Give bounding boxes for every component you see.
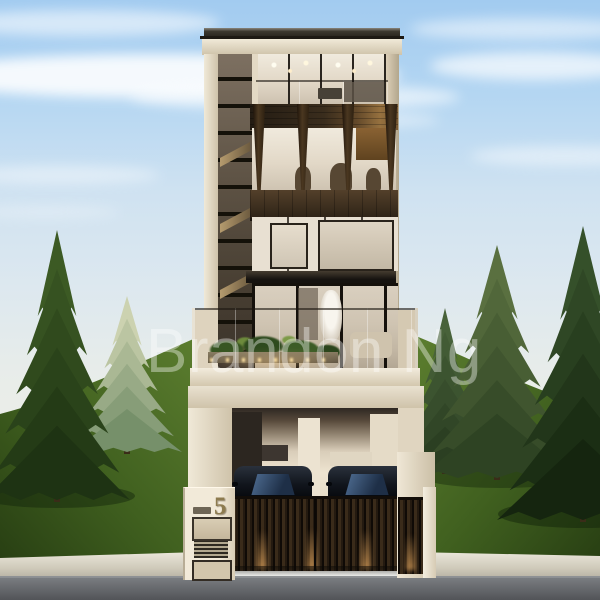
- parapet: [202, 39, 402, 55]
- fence-post-right: [423, 487, 436, 578]
- canopy-beam: [246, 271, 396, 283]
- garage-wall-unit: [262, 445, 288, 461]
- gate-uplight: [361, 519, 371, 569]
- car: [328, 466, 406, 500]
- car-mirror: [308, 482, 314, 486]
- architectural-render: 5 Brandon Ng: [0, 0, 600, 600]
- gate-ground-shadow: [231, 566, 399, 576]
- gate-center-seam: [314, 499, 316, 571]
- meter-panel: [192, 560, 232, 581]
- house-number: 5: [214, 494, 227, 519]
- floor2-window-band: [252, 217, 398, 271]
- name-plaque: [193, 507, 211, 514]
- car-windshield: [243, 474, 303, 495]
- floor2-window: [270, 223, 308, 269]
- garage-wall-right-upper: [398, 408, 424, 454]
- car-mirror: [232, 482, 238, 486]
- intercom-vent: [194, 541, 228, 558]
- car-mirror: [326, 482, 332, 486]
- fence-wood-right: [398, 497, 424, 574]
- garage-gate: [231, 496, 399, 571]
- building: 5: [0, 0, 600, 600]
- floor4-ceiling-lights: [258, 56, 386, 74]
- garage-wall-left: [188, 408, 232, 488]
- dining-chair: [366, 168, 381, 191]
- entrance-pillar: 5: [183, 487, 235, 580]
- car: [234, 466, 312, 500]
- floor2-window: [318, 220, 394, 271]
- floor3-wood-header: [250, 104, 398, 130]
- watermark: Brandon Ng: [146, 316, 482, 387]
- car-windshield: [337, 474, 397, 495]
- mailbox-panel: [192, 517, 232, 541]
- floor4-glass-balustrade: [256, 80, 388, 106]
- fence-uplight: [406, 524, 415, 570]
- garage-counter: [330, 452, 372, 466]
- gate-uplight: [257, 519, 267, 569]
